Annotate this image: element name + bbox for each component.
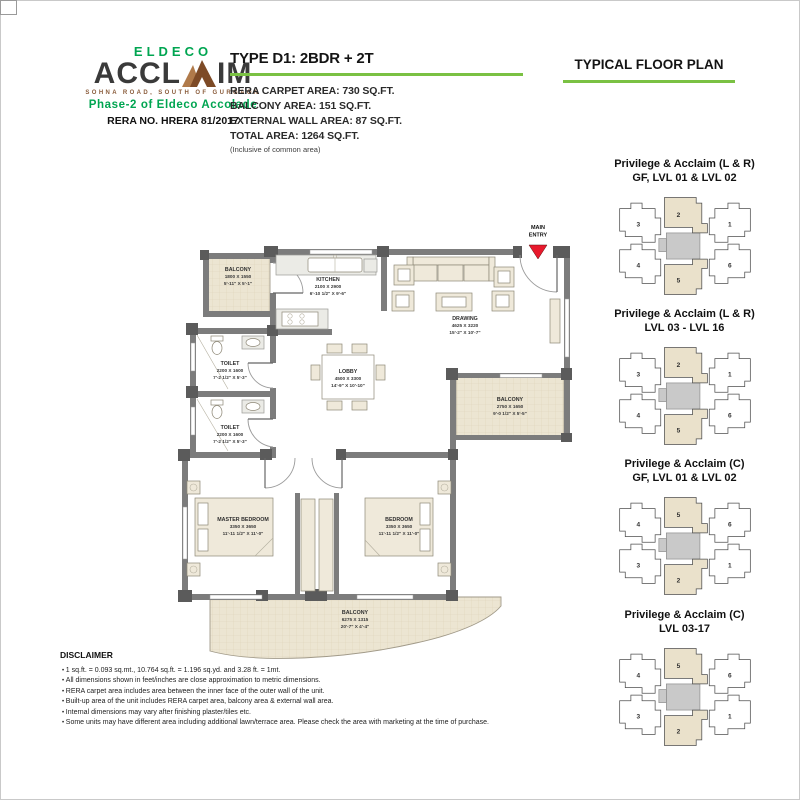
svg-text:5: 5 (676, 277, 680, 284)
rera-carpet-area: RERA CARPET AREA: 730 SQ.FT. (230, 84, 530, 99)
svg-text:4: 4 (636, 262, 640, 269)
svg-text:3: 3 (636, 713, 640, 720)
keyplan-3-title: Privilege & Acclaim (C) (592, 457, 777, 471)
svg-text:1: 1 (727, 713, 731, 720)
balcony-b-label: BALCONY (342, 610, 369, 616)
green-underline (563, 80, 735, 83)
toilet2-label: TOILET (221, 425, 241, 431)
lobby-label: LOBBY (339, 369, 358, 375)
keyplan-1-subtitle: GF, LVL 01 & LVL 02 (592, 171, 777, 185)
keyplan-4-subtitle: LVL 03-17 (592, 622, 777, 636)
svg-text:4: 4 (636, 412, 640, 419)
svg-text:7'-2 1/2" X 5'-3": 7'-2 1/2" X 5'-3" (213, 375, 247, 380)
svg-text:14'-9" X 10'-10": 14'-9" X 10'-10" (331, 383, 365, 388)
bedroom-furniture (187, 481, 451, 591)
svg-text:2200 X 1600: 2200 X 1600 (217, 368, 244, 373)
keyplan-3: Privilege & Acclaim (C) GF, LVL 01 & LVL… (592, 457, 777, 607)
svg-text:2750 X 1650: 2750 X 1650 (497, 404, 524, 409)
keyplan-cluster: 4 5 6 3 2 1 (606, 641, 764, 753)
keyplan-cluster: 3 2 1 4 5 6 (606, 190, 764, 302)
svg-text:3: 3 (636, 371, 640, 378)
green-underline (230, 73, 523, 76)
main-entry-label-1: MAIN (531, 225, 545, 231)
svg-text:7'-2 1/2" X 5'-3": 7'-2 1/2" X 5'-3" (213, 439, 247, 444)
keyplan-1-title: Privilege & Acclaim (L & R) (592, 157, 777, 171)
mountain-logo-icon (182, 60, 216, 87)
keyplan-1: Privilege & Acclaim (L & R) GF, LVL 01 &… (592, 157, 777, 307)
svg-text:3350 X 3650: 3350 X 3650 (230, 524, 257, 529)
svg-text:3: 3 (636, 562, 640, 569)
unit-type-title: TYPE D1: 2BDR + 2T (230, 50, 530, 67)
balcony-r-label: BALCONY (497, 397, 524, 403)
drawing-label: DRAWING (452, 316, 478, 322)
svg-text:2: 2 (676, 577, 680, 584)
svg-text:4625 X 3220: 4625 X 3220 (452, 323, 479, 328)
room-labels: BALCONY 1800 X 1550 5'-11" X 5'-1" KITCH… (213, 267, 527, 629)
balcony-area: BALCONY AREA: 151 SQ.FT. (230, 99, 530, 114)
external-wall-area: EXTERNAL WALL AREA: 87 SQ.FT. (230, 114, 530, 129)
svg-text:15'-2" X 10'-7": 15'-2" X 10'-7" (449, 330, 480, 335)
plan-title-text: TYPICAL FLOOR PLAN (563, 57, 735, 72)
keyplan-4-title: Privilege & Acclaim (C) (592, 608, 777, 622)
svg-text:5'-11" X 5'-1": 5'-11" X 5'-1" (224, 281, 252, 286)
entry-arrow-icon (529, 245, 547, 259)
keyplan-4: Privilege & Acclaim (C) LVL 03-17 4 5 6 … (592, 608, 777, 758)
corner-crop-mark (0, 0, 17, 15)
svg-text:1: 1 (727, 221, 731, 228)
svg-text:11'-11 1/2" X 11'-0": 11'-11 1/2" X 11'-0" (223, 531, 264, 536)
svg-text:9'-0 1/2" X 5'-5": 9'-0 1/2" X 5'-5" (493, 411, 527, 416)
disclaimer-list: 1 sq.ft. = 0.093 sq.mt., 10.764 sq.ft. =… (62, 666, 510, 728)
svg-text:6: 6 (727, 412, 731, 419)
svg-text:4500 X 3300: 4500 X 3300 (335, 376, 362, 381)
logo-acclaim-left: ACCL (94, 61, 181, 87)
svg-text:6: 6 (727, 672, 731, 679)
svg-text:2: 2 (676, 728, 680, 735)
svg-text:11'-11 1/2" X 11'-0": 11'-11 1/2" X 11'-0" (379, 531, 420, 536)
main-entry-label-2: ENTRY (529, 233, 548, 239)
svg-text:4: 4 (636, 521, 640, 528)
main-entry: MAIN ENTRY (529, 225, 548, 259)
floor-plan: MAIN ENTRY BALCONY 1800 X 1550 5'-11" X … (170, 215, 580, 670)
area-summary: RERA CARPET AREA: 730 SQ.FT. BALCONY ARE… (230, 84, 530, 144)
disclaimer-item: 1 sq.ft. = 0.093 sq.mt., 10.764 sq.ft. =… (62, 666, 510, 676)
svg-text:3: 3 (636, 221, 640, 228)
kitchen-label: KITCHEN (316, 277, 340, 283)
svg-text:1800 X 1550: 1800 X 1550 (225, 274, 252, 279)
disclaimer-item: Built-up area of the unit includes RERA … (62, 697, 510, 707)
keyplan-2: Privilege & Acclaim (L & R) LVL 03 - LVL… (592, 307, 777, 457)
disclaimer: DISCLAIMER 1 sq.ft. = 0.093 sq.mt., 10.7… (60, 650, 510, 728)
balcony-tl-label: BALCONY (225, 267, 252, 273)
svg-text:2: 2 (676, 362, 680, 369)
keyplan-2-subtitle: LVL 03 - LVL 16 (592, 321, 777, 335)
inclusive-note: (Inclusive of common area) (230, 145, 530, 154)
master-bedroom-label: MASTER BEDROOM (217, 517, 269, 523)
svg-text:3350 X 3650: 3350 X 3650 (386, 524, 413, 529)
bedroom-label: BEDROOM (385, 517, 413, 523)
svg-text:5: 5 (676, 512, 680, 519)
type-summary: TYPE D1: 2BDR + 2T RERA CARPET AREA: 730… (230, 50, 530, 154)
keyplan-3-subtitle: GF, LVL 01 & LVL 02 (592, 471, 777, 485)
svg-text:2: 2 (676, 212, 680, 219)
svg-text:2100 X 2900: 2100 X 2900 (315, 284, 342, 289)
keyplan-cluster: 3 2 1 4 5 6 (606, 340, 764, 452)
disclaimer-title: DISCLAIMER (60, 650, 510, 660)
keyplan-2-title: Privilege & Acclaim (L & R) (592, 307, 777, 321)
disclaimer-item: RERA carpet area includes area between t… (62, 687, 510, 697)
svg-text:4: 4 (636, 672, 640, 679)
svg-text:6'-10 1/2" X 9'-6": 6'-10 1/2" X 9'-6" (310, 291, 346, 296)
svg-text:6275 X 1315: 6275 X 1315 (342, 617, 369, 622)
disclaimer-item: All dimensions shown in feet/inches are … (62, 676, 510, 686)
svg-text:2200 X 1600: 2200 X 1600 (217, 432, 244, 437)
svg-text:1: 1 (727, 562, 731, 569)
typical-floor-plan-title: TYPICAL FLOOR PLAN (563, 57, 735, 83)
total-area: TOTAL AREA: 1264 SQ.FT. (230, 129, 530, 144)
svg-text:20'-7" X 4'-4": 20'-7" X 4'-4" (341, 624, 370, 629)
disclaimer-item: Some units may have different area inclu… (62, 718, 510, 728)
svg-text:5: 5 (676, 663, 680, 670)
svg-text:1: 1 (727, 371, 731, 378)
svg-text:5: 5 (676, 427, 680, 434)
disclaimer-item: Internal dimensions may vary after finis… (62, 708, 510, 718)
toilet1-label: TOILET (221, 361, 241, 367)
keyplan-cluster: 4 5 6 3 2 1 (606, 490, 764, 602)
svg-text:6: 6 (727, 262, 731, 269)
svg-text:6: 6 (727, 521, 731, 528)
